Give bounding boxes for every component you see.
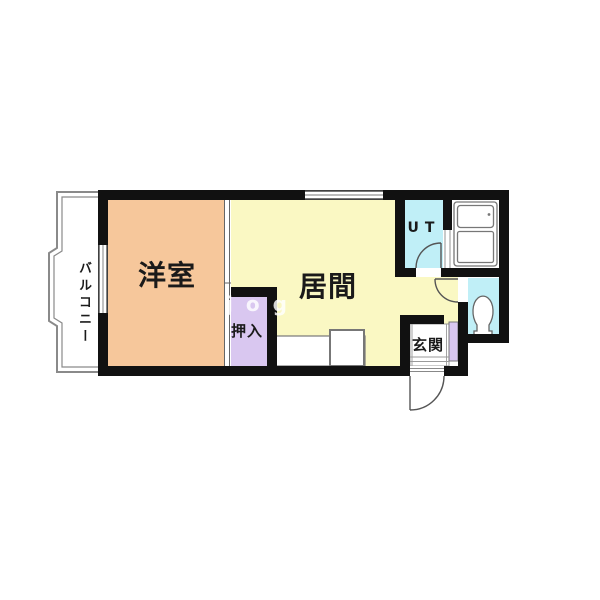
- bath-door: [443, 230, 452, 268]
- room-oshiire: [231, 297, 267, 366]
- shoe-cabinet: [449, 322, 458, 361]
- wall-genkan-left: [400, 315, 410, 376]
- wall-oshiire-right: [267, 287, 277, 366]
- floorplan-drawing: [0, 0, 600, 600]
- wall-ut-bath-divider: [443, 200, 452, 230]
- ut-door-opening: [416, 268, 441, 277]
- wall-top: [98, 190, 509, 200]
- entrance-opening: [410, 366, 444, 376]
- room-yoshitsu: [108, 200, 224, 366]
- sliding-partition: [224, 200, 231, 366]
- wall-toilet-bottom: [458, 334, 509, 343]
- entrance-door-arc: [410, 376, 444, 410]
- kitchen-sink-icon: [330, 330, 364, 366]
- wall-ut-bath-bottom: [395, 268, 509, 277]
- window-top: [305, 191, 383, 199]
- window-balcony: [99, 245, 107, 313]
- balcony-outer-outline: [49, 192, 98, 372]
- wall-right: [499, 190, 509, 343]
- wall-ut-left: [395, 200, 405, 277]
- bathtub-icon: [454, 202, 497, 266]
- room-genkan: [410, 324, 449, 366]
- room-ut: [405, 200, 443, 268]
- floorplan-canvas: 洋室 居間 押入 UT 玄関 バルコニー jog: [0, 0, 600, 600]
- toilet-icon: [473, 296, 493, 338]
